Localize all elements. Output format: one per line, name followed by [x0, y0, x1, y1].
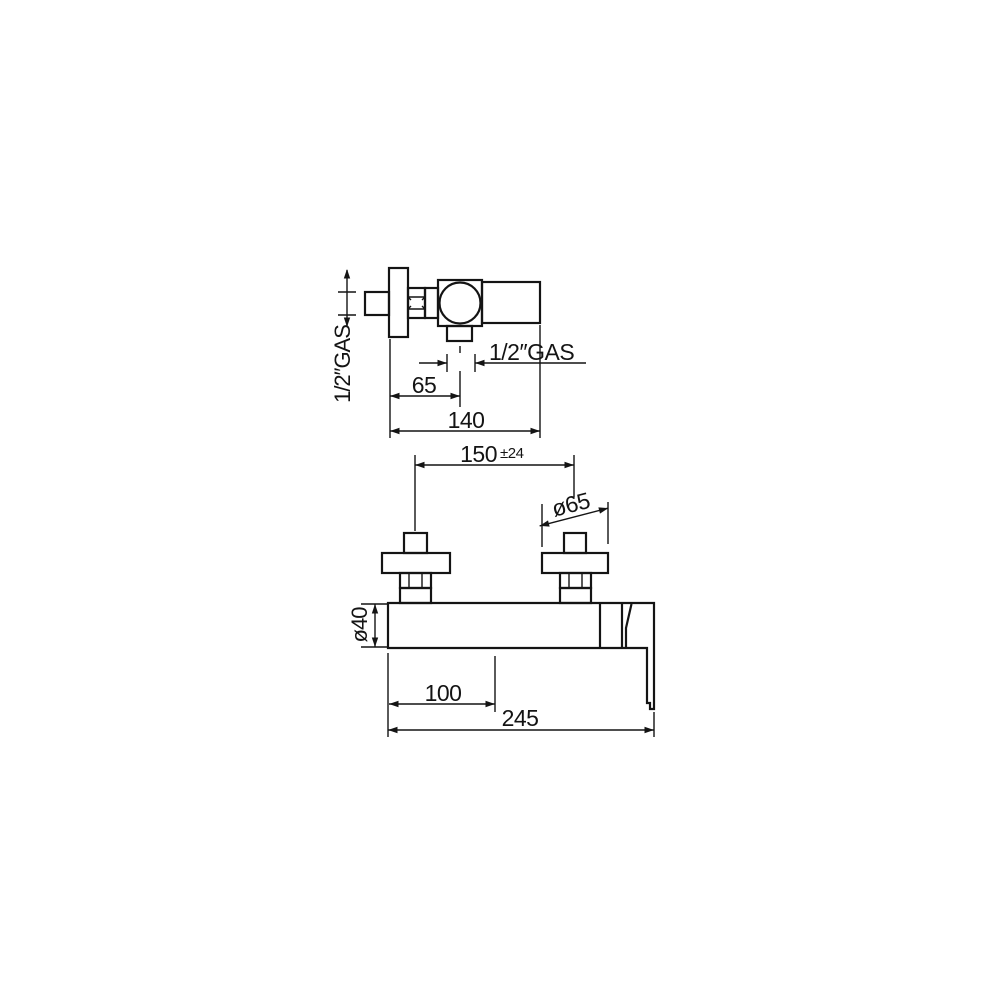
left-nut-base [400, 588, 431, 603]
right-flange [542, 553, 608, 573]
dim-150-label: 150 [460, 441, 497, 467]
dim-wall-thread: 1/2″GAS [330, 269, 356, 403]
top-view: 1/2″GAS 1/2″GAS 65 140 [330, 268, 586, 438]
dim-100: 100 [389, 656, 495, 712]
arrowhead-right [531, 428, 541, 434]
top-connector [425, 288, 438, 318]
outlet-thread-label: 1/2″GAS [489, 339, 574, 365]
dim-outlet-thread: 1/2″GAS [419, 339, 586, 372]
arrowhead-left [415, 462, 425, 468]
arrowhead-left [475, 360, 485, 366]
arrowhead-up [344, 269, 350, 279]
top-hex-nut [408, 288, 425, 318]
dim-100-label: 100 [425, 680, 462, 706]
arrowhead-right [451, 393, 461, 399]
front-right-mount [542, 533, 608, 603]
left-hex-nut [400, 573, 431, 588]
top-wall-stub [365, 292, 389, 315]
left-pipe-stub [404, 533, 427, 553]
technical-drawing-page: 1/2″GAS 1/2″GAS 65 140 [0, 0, 1000, 1000]
arrowhead-left [390, 428, 400, 434]
top-valve-block [438, 280, 482, 326]
arrowhead-up [372, 604, 378, 614]
arrowhead-right [645, 727, 655, 733]
left-flange [382, 553, 450, 573]
arrowhead-right [486, 701, 496, 707]
body-dividers [600, 603, 622, 648]
front-left-mount [382, 533, 450, 603]
dim-65-label: 65 [412, 372, 437, 398]
dim-150: 150 ±24 [415, 441, 574, 531]
front-view: 150 ±24 ø65 ø40 [347, 441, 654, 737]
right-hex-nut [560, 573, 591, 588]
arrowhead-right [565, 462, 575, 468]
arrowhead-down [372, 638, 378, 648]
right-nut-base [560, 588, 591, 603]
arrowhead-left [539, 520, 550, 529]
top-outlet [447, 326, 472, 341]
top-cartridge-circle [440, 283, 481, 324]
top-body [482, 282, 540, 323]
right-pipe-stub [564, 533, 586, 553]
dim-150-tolerance: ±24 [500, 445, 524, 462]
dim-140-label: 140 [448, 407, 485, 433]
arrowhead-left [388, 727, 398, 733]
dim-o40: ø40 [347, 604, 388, 647]
dim-245-label: 245 [502, 705, 539, 731]
lever-edge [626, 604, 632, 647]
top-wall-flange [389, 268, 408, 337]
dim-o40-label: ø40 [347, 607, 372, 643]
arrowhead-left [389, 701, 399, 707]
dim-o65-label: ø65 [549, 487, 592, 522]
dim-o65: ø65 [533, 483, 609, 547]
wall-thread-label: 1/2″GAS [330, 325, 355, 403]
arrowhead-left [390, 393, 400, 399]
arrowhead-right [438, 360, 448, 366]
drawing-canvas: 1/2″GAS 1/2″GAS 65 140 [0, 0, 1000, 1000]
